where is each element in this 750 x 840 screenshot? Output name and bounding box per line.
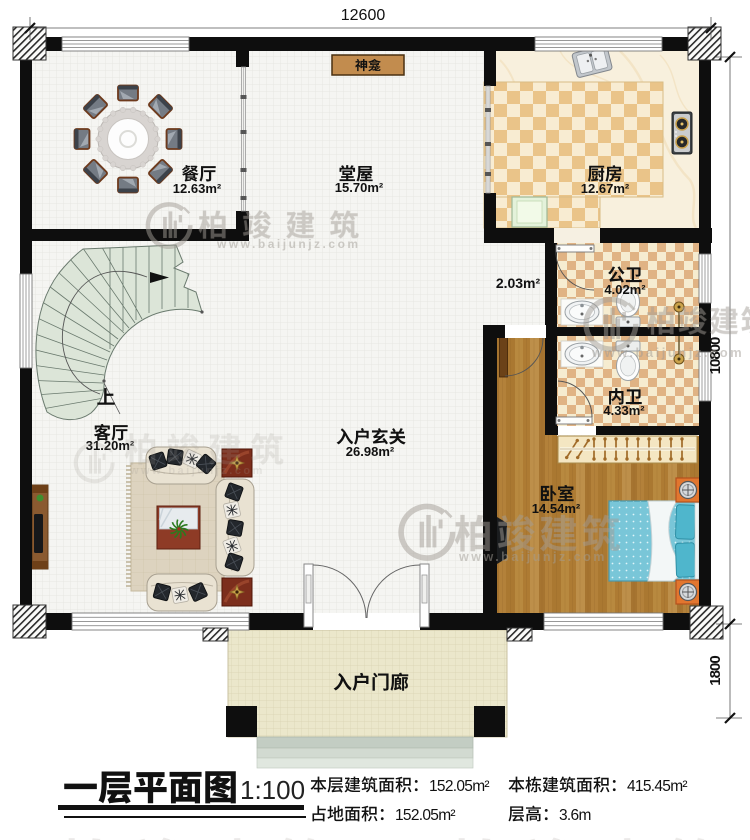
svg-text:www.baijunjz.com: www.baijunjz.com (458, 550, 607, 564)
svg-text:14.54m²: 14.54m² (532, 501, 581, 516)
svg-text:www.baijunjz.com: www.baijunjz.com (129, 465, 265, 477)
svg-text:4.02m²: 4.02m² (604, 282, 646, 297)
svg-text:www.baijunjz.com: www.baijunjz.com (216, 237, 361, 251)
svg-text:15.70m²: 15.70m² (335, 180, 384, 195)
svg-text:4.33m²: 4.33m² (603, 403, 645, 418)
svg-text:26.98m²: 26.98m² (346, 444, 395, 459)
svg-text:152.05m²: 152.05m² (395, 807, 455, 824)
svg-text:3.6m: 3.6m (559, 807, 591, 824)
svg-text:152.05m²: 152.05m² (429, 778, 489, 795)
svg-text:2.03m²: 2.03m² (496, 275, 541, 291)
svg-text:12.63m²: 12.63m² (173, 181, 222, 196)
svg-text:12600: 12600 (341, 7, 386, 24)
svg-text:12.67m²: 12.67m² (581, 181, 630, 196)
svg-text:www.baijunjz.com: www.baijunjz.com (591, 345, 744, 360)
svg-text:415.45m²: 415.45m² (627, 778, 687, 795)
svg-text:1800: 1800 (707, 656, 724, 686)
svg-text:1:100: 1:100 (240, 775, 305, 805)
